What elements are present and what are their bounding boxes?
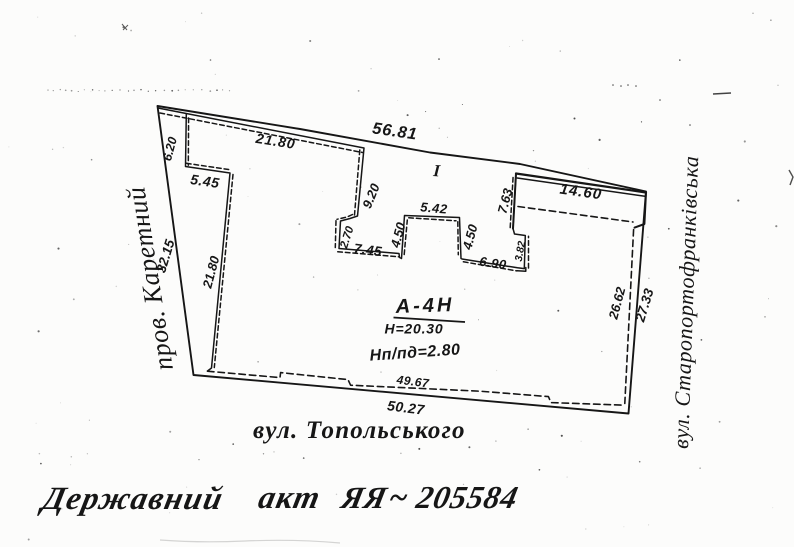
svg-text:5.42: 5.42 bbox=[420, 199, 449, 216]
svg-text:вул. Топольського: вул. Топольського bbox=[253, 417, 466, 444]
svg-text:ЯЯ: ЯЯ bbox=[338, 480, 391, 515]
svg-text:А-4Н: А-4Н bbox=[394, 294, 454, 318]
svg-text:Державний: Державний bbox=[36, 481, 227, 517]
svg-text:~ 205584: ~ 205584 bbox=[386, 479, 522, 515]
svg-text:акт: акт bbox=[255, 480, 324, 516]
svg-text:Н=20.30: Н=20.30 bbox=[385, 321, 444, 337]
